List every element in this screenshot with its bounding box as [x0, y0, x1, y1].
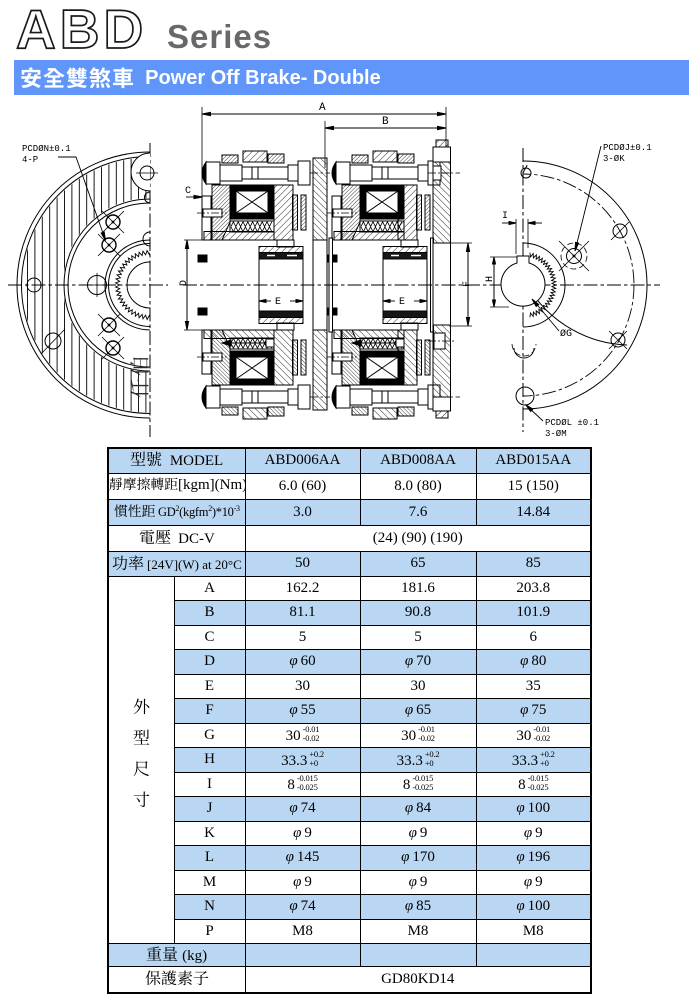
svg-text:B: B — [382, 116, 389, 128]
svg-text:PCDØN±0.1: PCDØN±0.1 — [22, 144, 71, 154]
svg-text:PCDØJ±0.1: PCDØJ±0.1 — [603, 143, 652, 153]
svg-text:PCDØL ±0.1: PCDØL ±0.1 — [545, 418, 599, 428]
svg-text:I: I — [502, 211, 508, 222]
svg-text:F: F — [462, 281, 473, 287]
svg-text:4-P: 4-P — [22, 155, 38, 165]
svg-text:E: E — [275, 297, 281, 308]
svg-text:3-ØK: 3-ØK — [603, 154, 625, 164]
svg-text:A: A — [319, 102, 326, 114]
svg-text:H: H — [485, 276, 496, 282]
svg-text:E: E — [399, 297, 405, 308]
svg-text:ØG: ØG — [560, 328, 572, 340]
svg-text:3-ØM: 3-ØM — [545, 429, 567, 439]
svg-text:C: C — [185, 186, 191, 197]
svg-text:D: D — [179, 280, 190, 286]
